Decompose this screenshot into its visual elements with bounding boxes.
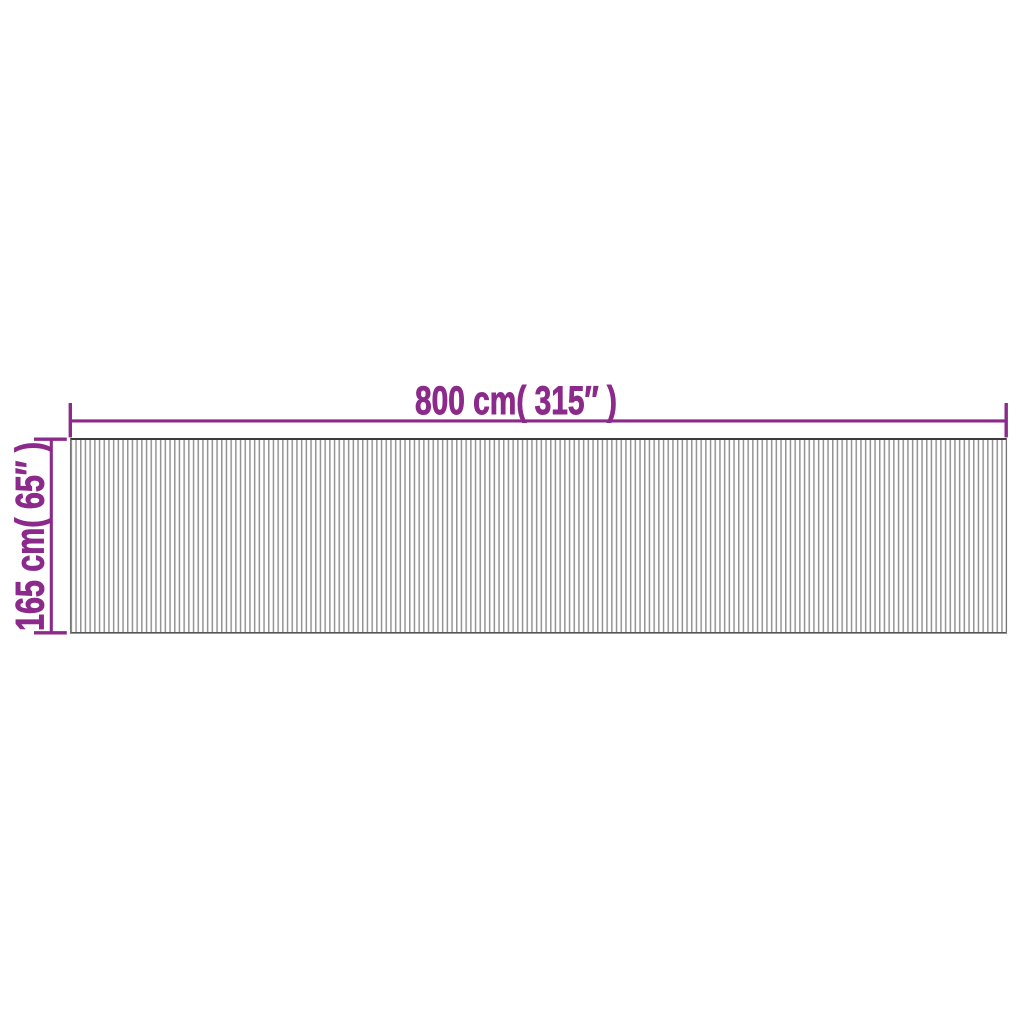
svg-text:800 cm( 315″ ): 800 cm( 315″ ) <box>415 379 617 423</box>
svg-text:165 cm( 65″ ): 165 cm( 65″ ) <box>9 442 53 631</box>
